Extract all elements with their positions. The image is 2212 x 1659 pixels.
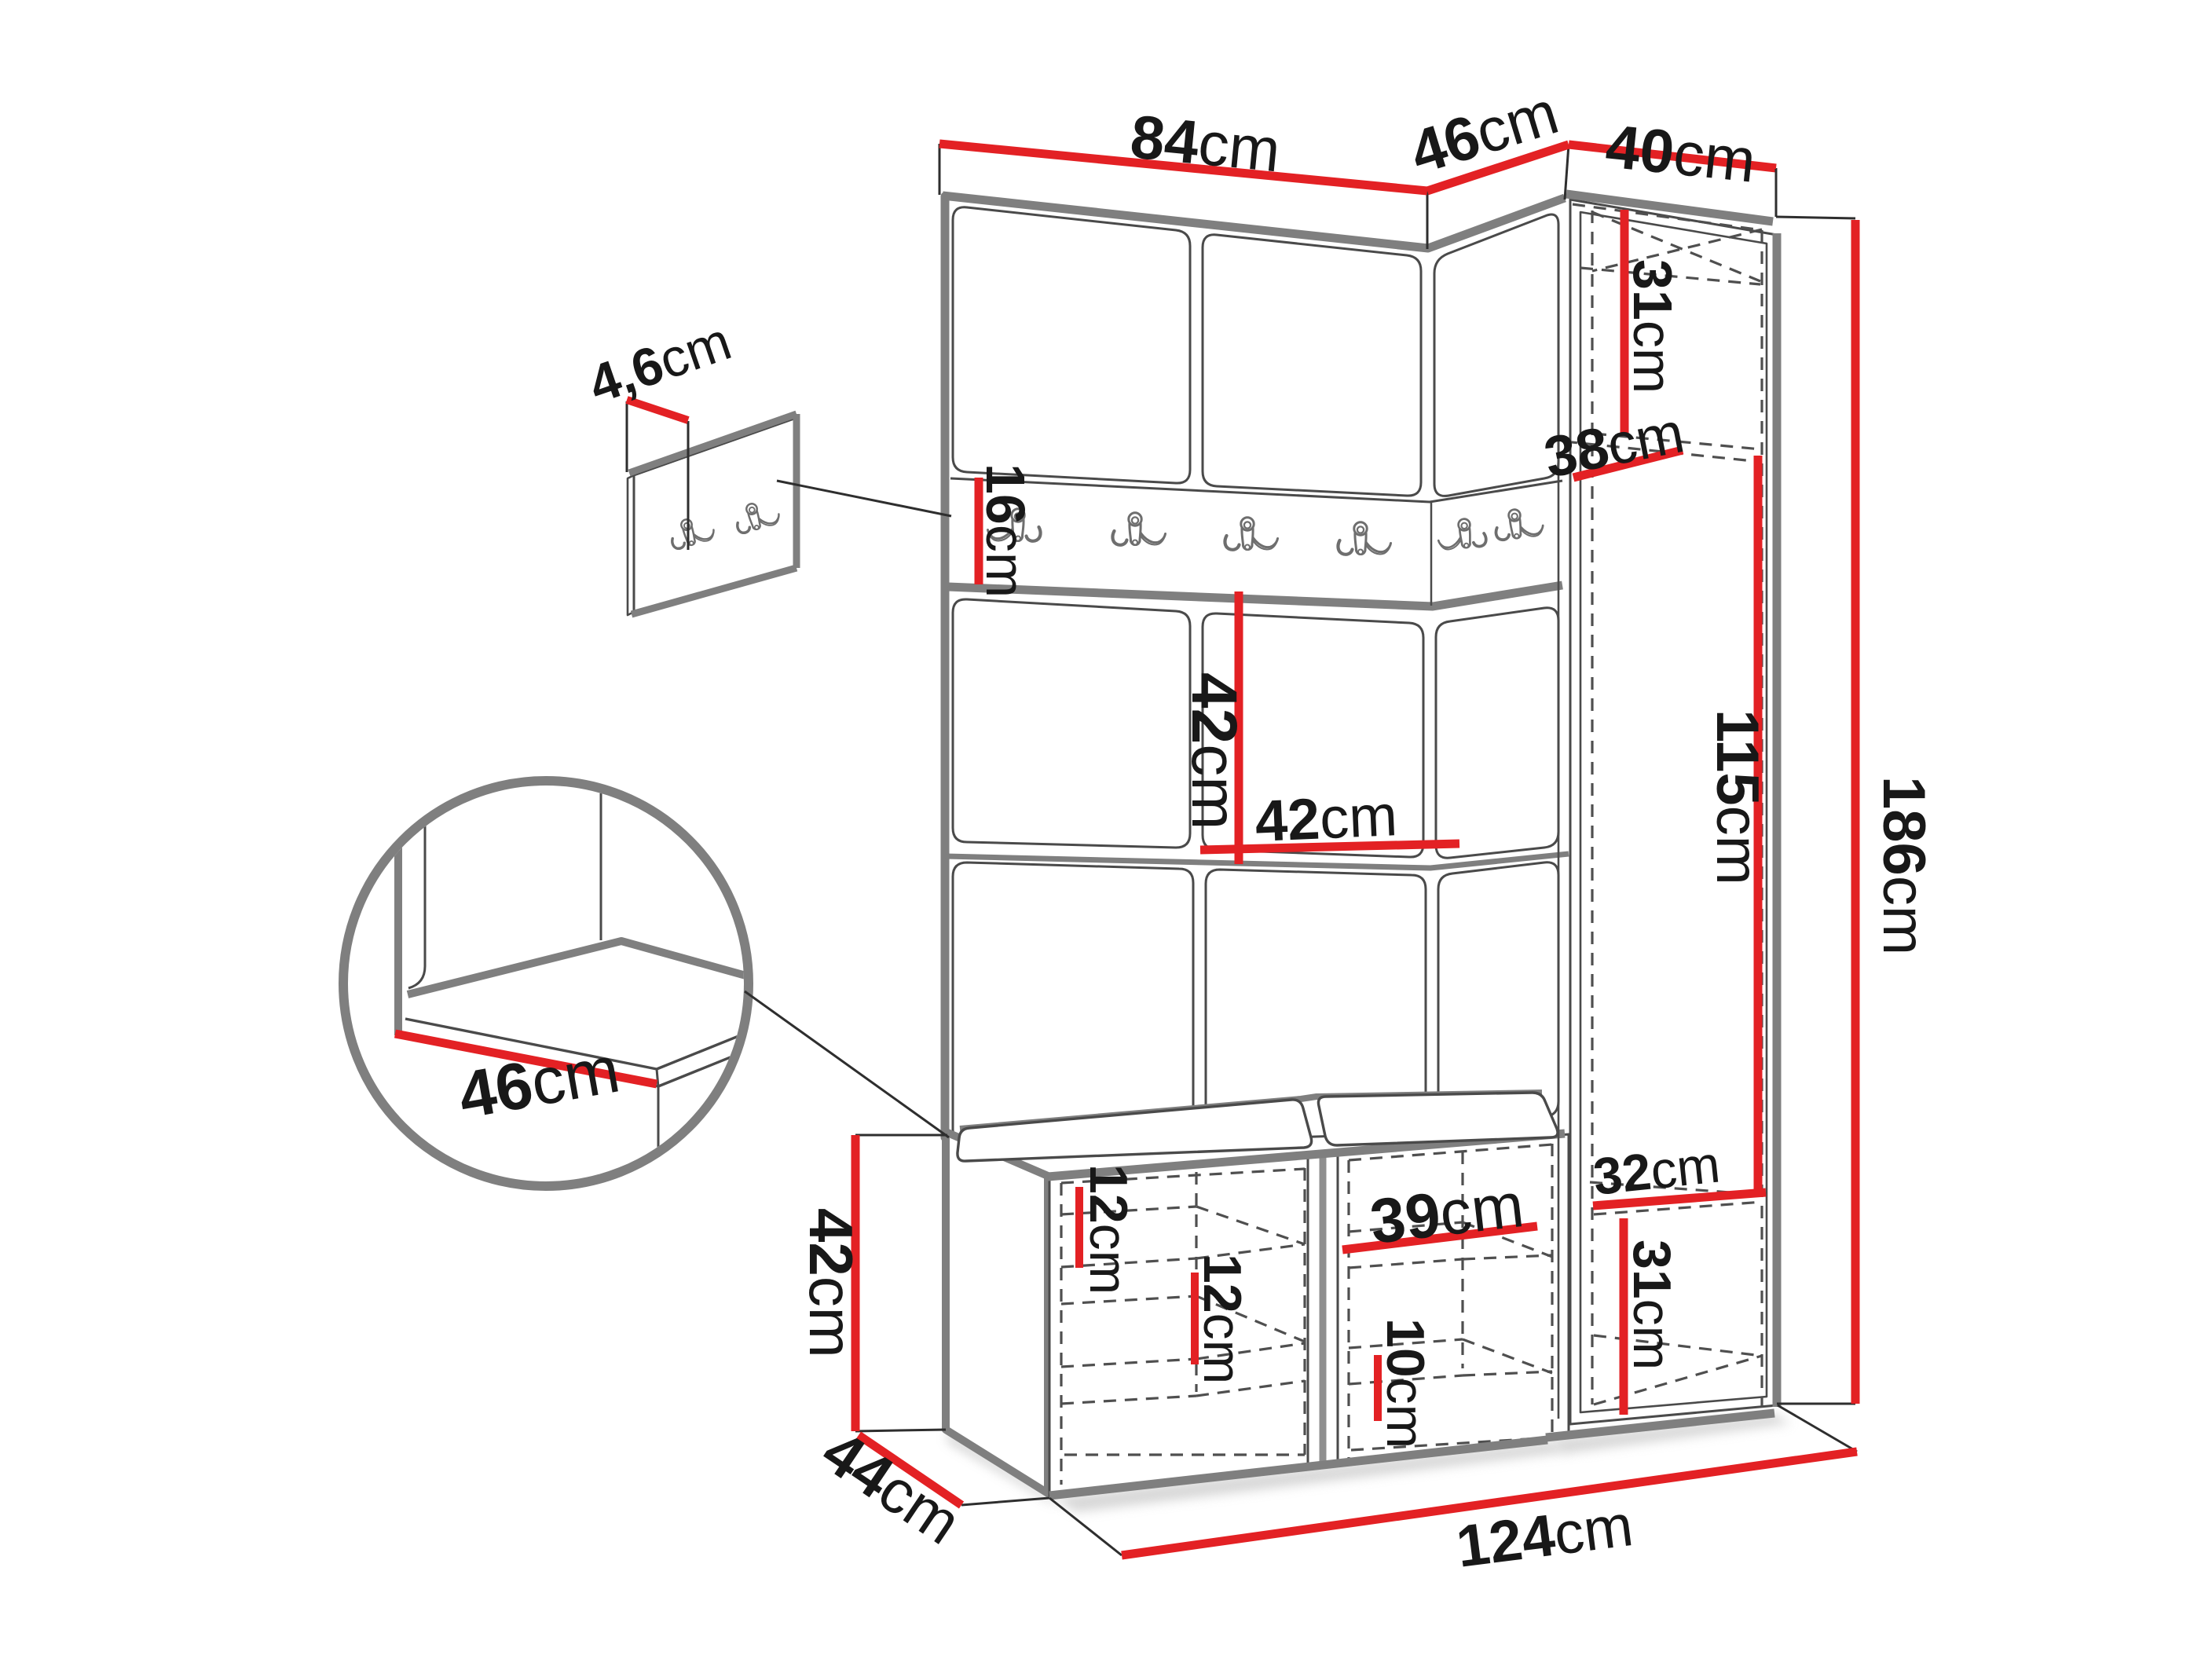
- svg-text:42cm: 42cm: [1254, 782, 1398, 854]
- svg-text:12cm: 12cm: [1192, 1254, 1252, 1384]
- svg-text:42cm: 42cm: [797, 1208, 866, 1358]
- svg-text:10cm: 10cm: [1375, 1318, 1435, 1448]
- svg-text:42cm: 42cm: [1178, 672, 1250, 830]
- svg-text:31cm: 31cm: [1622, 259, 1683, 394]
- svg-text:84cm: 84cm: [1127, 101, 1283, 185]
- svg-text:12cm: 12cm: [1079, 1164, 1138, 1295]
- svg-text:115cm: 115cm: [1704, 709, 1771, 885]
- svg-text:31cm: 31cm: [1622, 1240, 1682, 1370]
- svg-text:186cm: 186cm: [1870, 776, 1937, 955]
- svg-text:16cm: 16cm: [975, 463, 1036, 598]
